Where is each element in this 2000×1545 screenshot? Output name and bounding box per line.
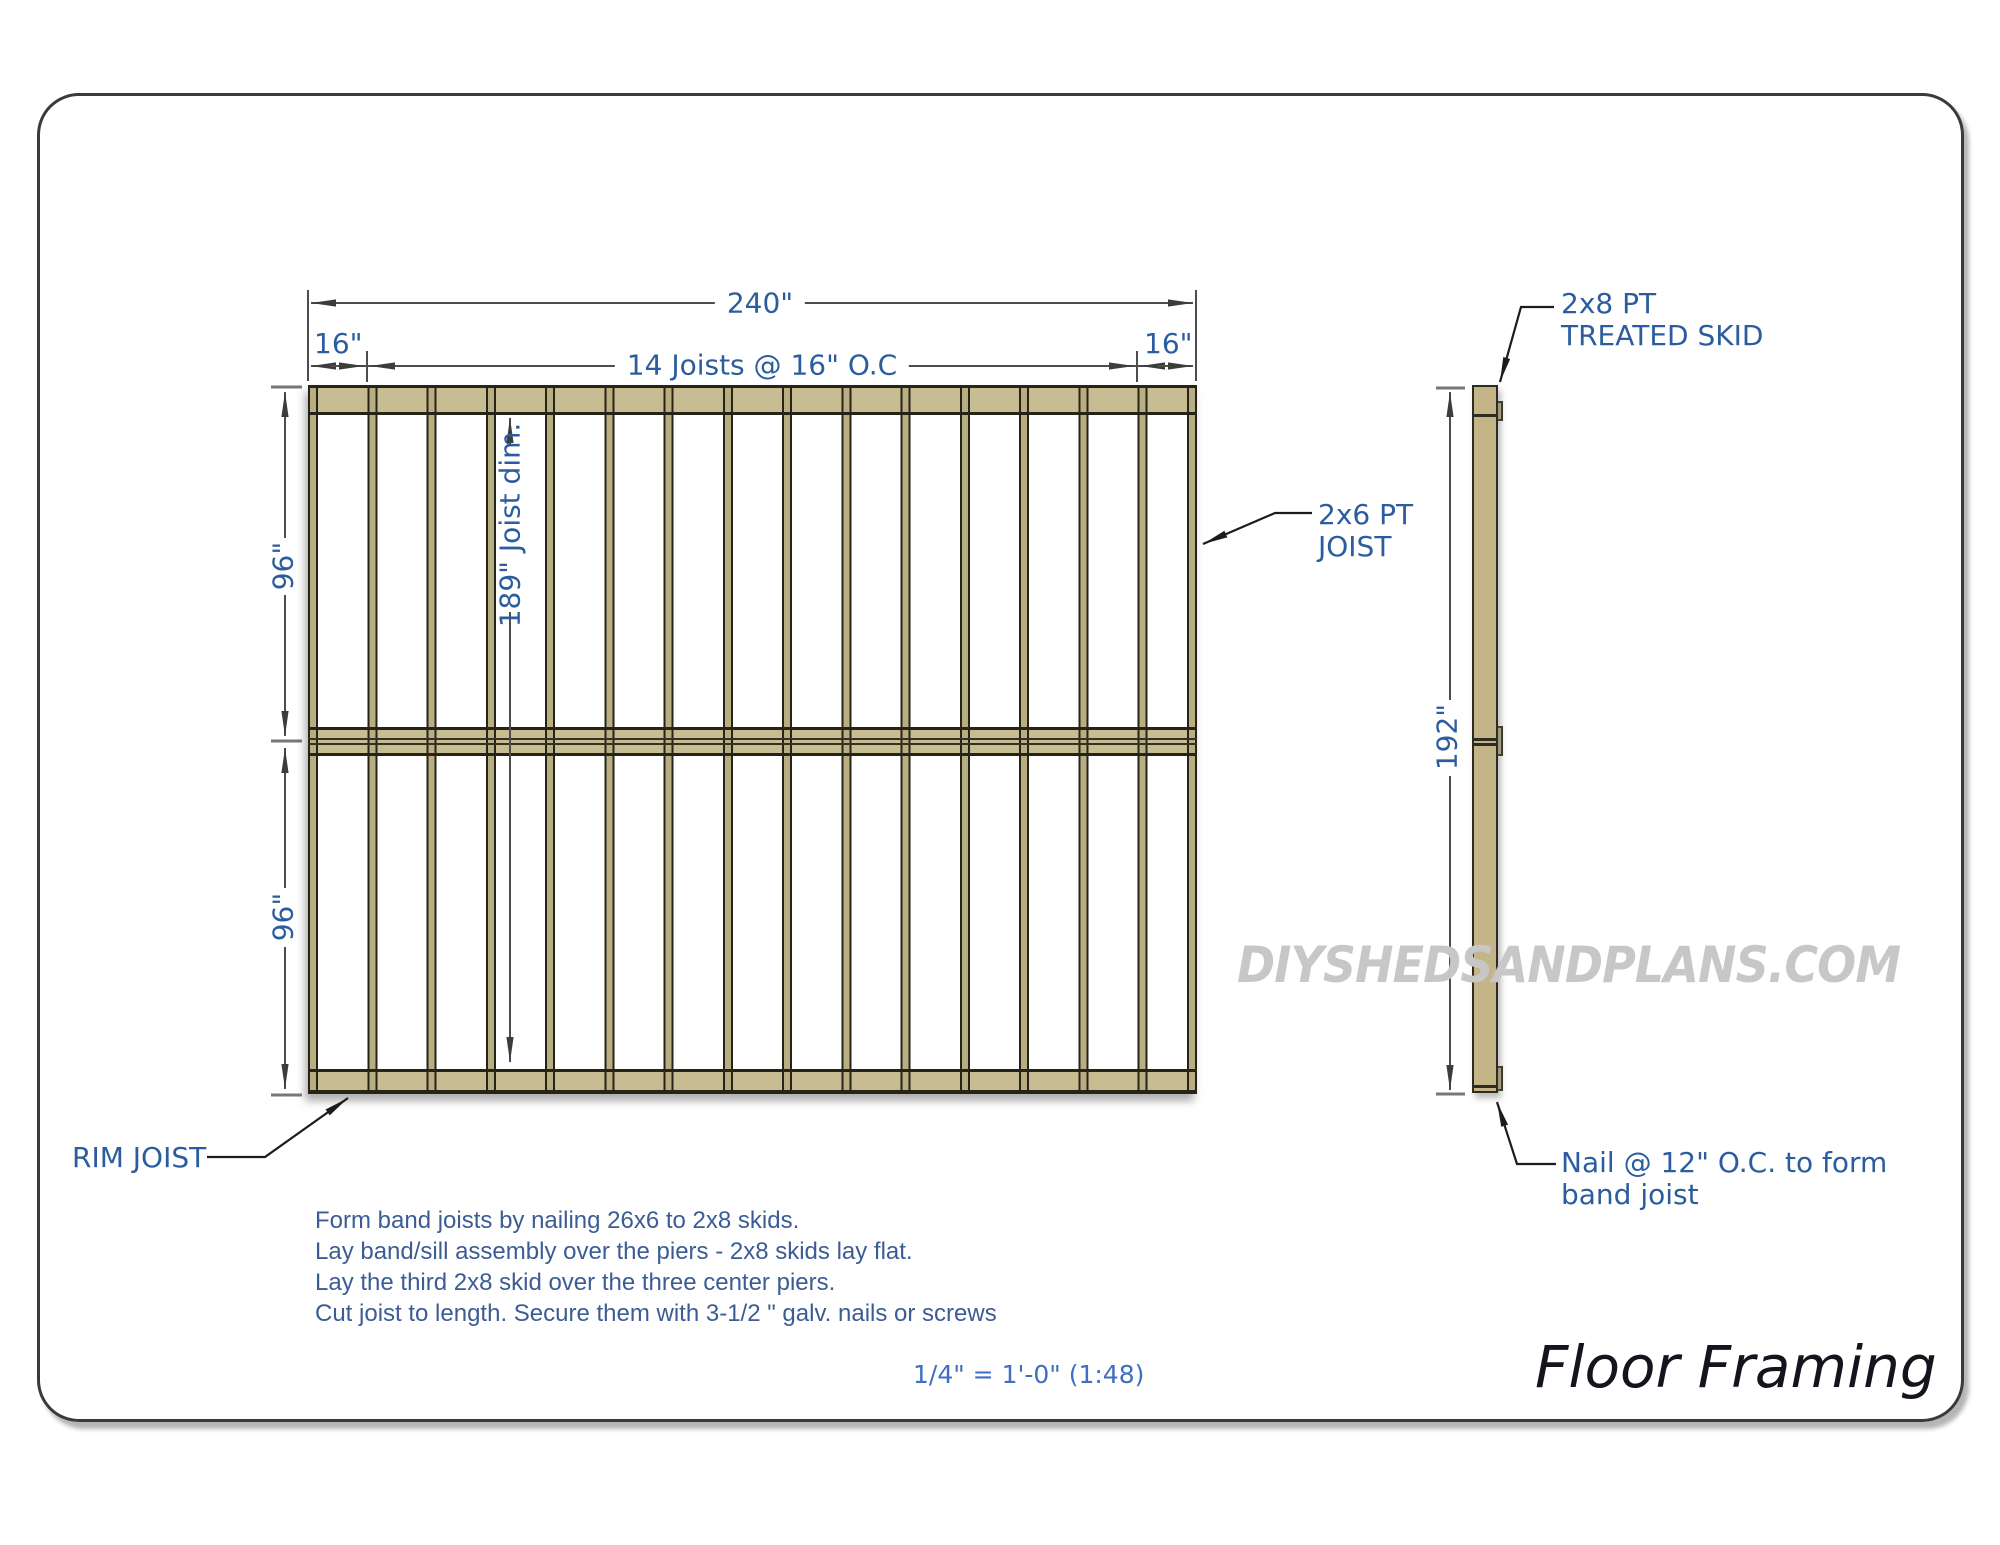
note-line-3: Lay the third 2x8 skid over the three ce…: [315, 1267, 997, 1298]
band-mid-upper-line: [308, 727, 1197, 730]
drawing-sheet: 240" 16" 16" 14 Joists @ 16" O.C 96" 96"…: [0, 0, 2000, 1545]
dim-joist-layout-label: 14 Joists @ 16" O.C: [615, 349, 909, 382]
band-top-upper-line: [308, 385, 1197, 388]
construction-notes: Form band joists by nailing 26x6 to 2x8 …: [315, 1205, 997, 1329]
skid-callout-line2: TREATED SKID: [1561, 320, 1763, 352]
dim-lower-height-label: 96": [267, 893, 300, 942]
band-mid-lower-line: [308, 753, 1197, 756]
dim-overall-width-label: 240": [715, 287, 805, 320]
joist-callout-label: 2x6 PT JOIST: [1318, 499, 1413, 563]
floor-frame-plan-view: [308, 385, 1197, 1094]
skid-joint-line-top: [1474, 414, 1496, 417]
band-bottom-upper-line: [308, 1069, 1197, 1072]
note-line-4: Cut joist to length. Secure them with 3-…: [315, 1298, 997, 1329]
skid-joint-line-mid-2: [1474, 743, 1496, 746]
skid-joint-line-mid-1: [1474, 738, 1496, 741]
dim-left-bay-label: 16": [314, 327, 363, 360]
note-line-1: Form band joists by nailing 26x6 to 2x8 …: [315, 1205, 997, 1236]
dim-joist-length-label: 189" Joist dim.: [494, 423, 527, 628]
drawing-title: Floor Framing: [1535, 1333, 1937, 1401]
nail-callout-label: Nail @ 12" O.C. to form band joist: [1561, 1147, 1887, 1211]
band-top-lower-line: [308, 412, 1197, 415]
skid-callout-label: 2x8 PT TREATED SKID: [1561, 288, 1763, 352]
nail-callout-line2: band joist: [1561, 1179, 1887, 1211]
band-mid-inner-line-1: [308, 738, 1197, 740]
band-mid-inner-line-2: [308, 743, 1197, 745]
dim-skid-length-label: 192": [1431, 704, 1464, 770]
rim-joist-label: RIM JOIST: [72, 1141, 206, 1174]
nail-callout-line1: Nail @ 12" O.C. to form: [1561, 1147, 1887, 1179]
band-bottom-lower-line: [308, 1090, 1197, 1094]
dim-right-bay-label: 16": [1144, 327, 1193, 360]
note-line-2: Lay band/sill assembly over the piers - …: [315, 1236, 997, 1267]
drawing-scale: 1/4" = 1'-0" (1:48): [913, 1360, 1144, 1389]
watermark: DIYSHEDSANDPLANS.COM: [1237, 936, 1900, 994]
joist-callout-line2: JOIST: [1318, 531, 1413, 563]
joist-callout-line1: 2x6 PT: [1318, 499, 1413, 531]
dim-upper-height-label: 96": [267, 542, 300, 591]
skid-callout-line1: 2x8 PT: [1561, 288, 1763, 320]
skid-joint-line-bottom: [1474, 1085, 1496, 1088]
